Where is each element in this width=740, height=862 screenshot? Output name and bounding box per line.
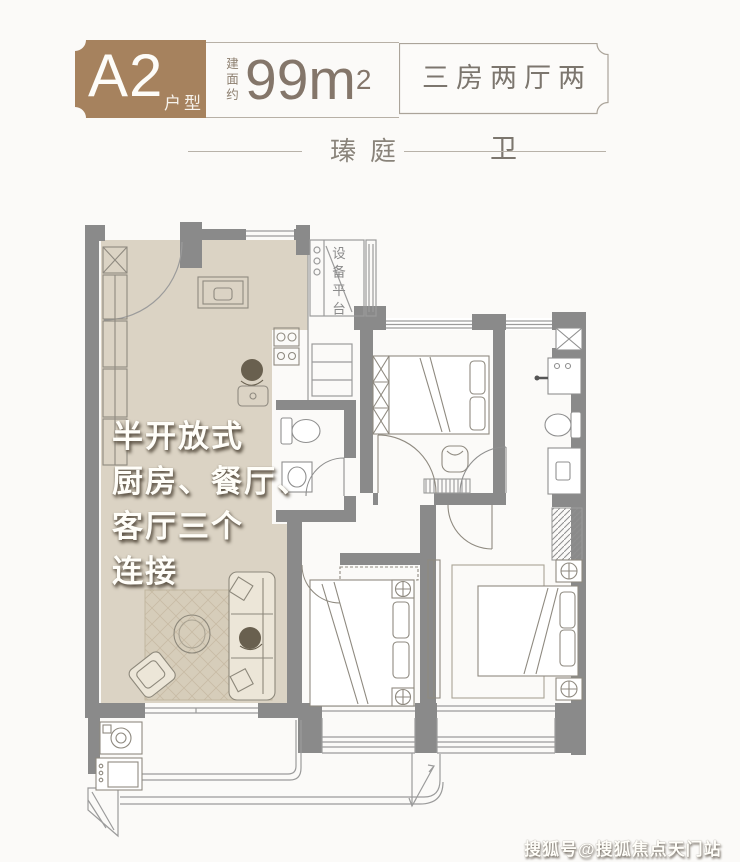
- ac-platform: [88, 788, 118, 836]
- bay-window-left: [322, 706, 415, 753]
- project-name: 瑧庭: [300, 131, 430, 168]
- title-rule-left: [188, 151, 302, 152]
- area-superscript: 2: [356, 64, 372, 96]
- title-rule-right: [404, 151, 606, 152]
- bay-window-right: [437, 706, 555, 753]
- annotation-line: 连接: [112, 549, 310, 594]
- annotation-line: 半开放式: [112, 414, 310, 459]
- area-box: 建面约 99m2: [206, 42, 399, 118]
- vanity-icon: [535, 358, 582, 394]
- area-prefix: 建面约: [222, 50, 241, 110]
- floor-plan: [0, 0, 740, 862]
- bed-icon: [478, 586, 578, 676]
- equipment-platform-label: 设备平台: [327, 246, 347, 320]
- unit-code: A2: [88, 41, 163, 110]
- window-top-bath2: [506, 318, 552, 330]
- bed-icon: [310, 580, 414, 706]
- master-door-arc: [448, 505, 492, 549]
- wardrobe-icon: [373, 356, 389, 434]
- balcony-slider: [145, 708, 258, 713]
- wardrobe-icon: [340, 567, 418, 580]
- laundry-sink-icon: [96, 758, 142, 790]
- annotation-line: 厨房、餐厅、: [112, 459, 310, 504]
- shower-icon: [548, 448, 581, 494]
- washer-icon: [100, 722, 142, 754]
- plan-annotation: 半开放式 厨房、餐厅、 客厅三个 连接: [112, 414, 310, 594]
- bed-icon: [389, 356, 489, 434]
- balcony-fixtures: [96, 722, 142, 790]
- area-value: 99: [245, 45, 308, 115]
- bedroom-2: [373, 356, 489, 493]
- wardrobe-icon: [552, 508, 582, 560]
- chair-icon: [442, 446, 468, 472]
- closet-niche: [312, 344, 352, 396]
- toilet-icon: [545, 412, 581, 438]
- window-top-bedroom2: [386, 318, 472, 330]
- bedroom-1: [302, 565, 418, 706]
- floor-plan-page: A2 户型 建面约 99m2 三房两厅两卫 瑧庭 半开放式 厨房、餐厅、 客厅三…: [0, 0, 740, 862]
- shoe-cabinet-icon: [424, 479, 470, 493]
- area-unit: m: [308, 47, 355, 113]
- stove-icon: [274, 328, 299, 365]
- unit-code-suffix: 户型: [164, 89, 204, 114]
- layout-spec: 三房两厅两卫: [399, 43, 608, 114]
- watermark: 搜狐号@搜狐焦点天门站: [524, 835, 722, 860]
- annotation-line: 客厅三个: [112, 504, 310, 549]
- master-bedroom: [428, 505, 582, 700]
- shaft-icon: [556, 328, 582, 350]
